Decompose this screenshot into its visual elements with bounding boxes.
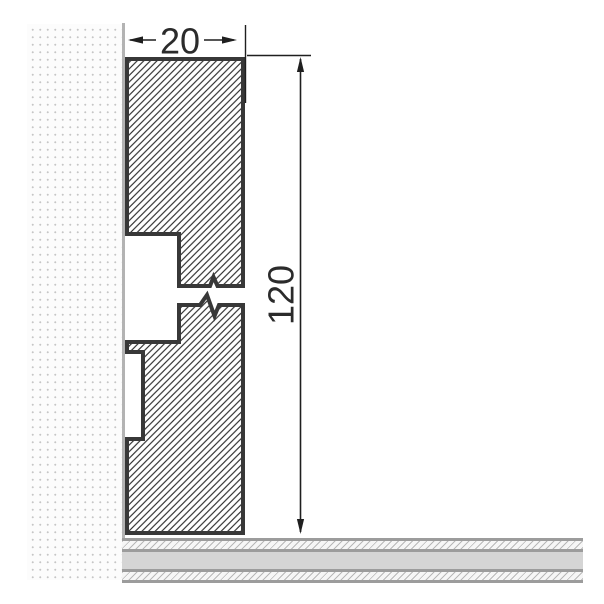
width-dim-arrow-left — [128, 36, 143, 43]
width-dim-arrow-right — [222, 36, 237, 43]
skirting-profile-upper-segment — [127, 59, 243, 286]
height-dimension-label: 120 — [261, 265, 302, 325]
profile-drawing: 20 120 — [0, 0, 604, 604]
height-dim-arrow-down — [297, 519, 304, 534]
height-dimension: 120 — [247, 56, 311, 535]
drawing-canvas: 20 120 — [0, 0, 604, 604]
skirting-profile-lower-segment — [127, 295, 243, 533]
width-dimension-label: 20 — [160, 21, 200, 62]
skirting-profile-with-break — [127, 59, 243, 533]
height-dim-arrow-up — [297, 57, 304, 72]
